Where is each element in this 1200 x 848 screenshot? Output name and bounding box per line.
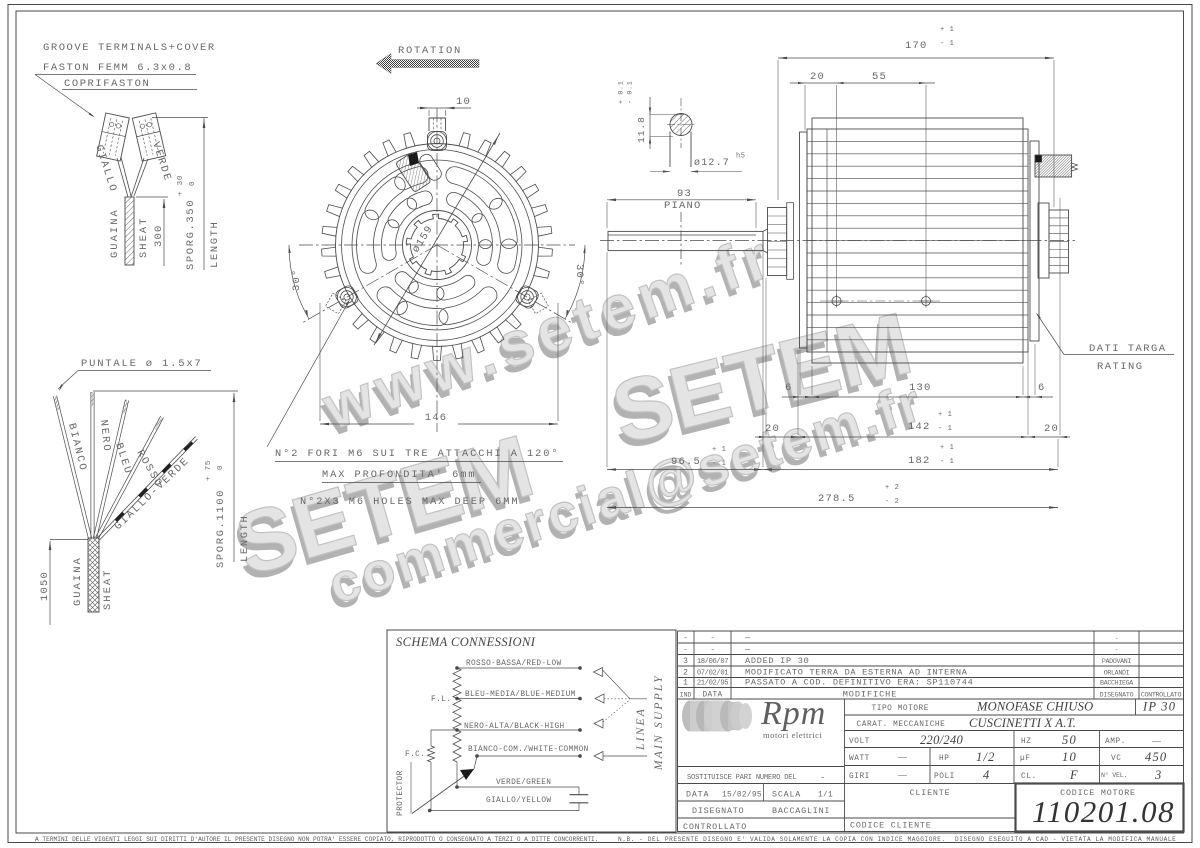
svg-text:+ 1: + 1 bbox=[940, 26, 954, 34]
svg-text:DISEGNO ESEGUITO A CAD - VIETA: DISEGNO ESEGUITO A CAD - VIETATA LA MODI… bbox=[955, 836, 1176, 843]
svg-text:N° VEL.: N° VEL. bbox=[1101, 771, 1127, 779]
svg-text:CLIENTE: CLIENTE bbox=[910, 788, 951, 798]
svg-text:20: 20 bbox=[810, 71, 825, 83]
svg-text:SHEAT: SHEAT bbox=[138, 216, 150, 258]
svg-text:55: 55 bbox=[872, 71, 887, 83]
svg-text:h5: h5 bbox=[736, 153, 745, 161]
svg-text:VERDE/GREEN: VERDE/GREEN bbox=[496, 779, 551, 787]
svg-text:20: 20 bbox=[765, 423, 780, 435]
svg-text:VC: VC bbox=[1111, 755, 1121, 763]
svg-text:- 2: - 2 bbox=[885, 498, 899, 506]
svg-text:1/2: 1/2 bbox=[976, 750, 996, 764]
svg-text:1050: 1050 bbox=[39, 571, 51, 601]
svg-text:DATA: DATA bbox=[686, 790, 709, 800]
svg-text:LINEA: LINEA bbox=[635, 707, 647, 751]
svg-text:VOLT: VOLT bbox=[849, 738, 870, 746]
svg-text:1: 1 bbox=[683, 679, 688, 688]
svg-text:MONOFASE CHIUSO: MONOFASE CHIUSO bbox=[976, 700, 1093, 714]
svg-text:110201.08: 110201.08 bbox=[1032, 794, 1175, 829]
svg-text:+ 1: + 1 bbox=[938, 411, 952, 419]
svg-text:CARAT. MECCANICHE: CARAT. MECCANICHE bbox=[857, 721, 946, 729]
svg-text:PASSATO A COD. DEFINITIVO ERA:: PASSATO A COD. DEFINITIVO ERA: SP110744 bbox=[745, 678, 973, 688]
svg-text:CUSCINETTI X A.T.: CUSCINETTI X A.T. bbox=[969, 716, 1076, 730]
svg-text:CONTROLLATO: CONTROLLATO bbox=[1141, 692, 1182, 699]
svg-text:RATING: RATING bbox=[1097, 361, 1144, 373]
svg-text:DISEGNATO: DISEGNATO bbox=[1100, 692, 1134, 699]
svg-text:HZ: HZ bbox=[1021, 738, 1031, 746]
svg-text:- 1: - 1 bbox=[938, 425, 952, 433]
svg-text:300: 300 bbox=[153, 224, 165, 247]
svg-text:F: F bbox=[1069, 768, 1079, 782]
svg-text:GUAINA: GUAINA bbox=[109, 208, 121, 258]
svg-text:µF: µF bbox=[1020, 755, 1030, 763]
svg-text:BACCHIEGA: BACCHIEGA bbox=[1100, 680, 1133, 687]
svg-text:10: 10 bbox=[456, 96, 471, 108]
svg-text:130: 130 bbox=[909, 382, 932, 394]
svg-text:GIRI: GIRI bbox=[849, 773, 870, 781]
svg-text:BLEU-MEDIA/BLUE-MEDIUM: BLEU-MEDIA/BLUE-MEDIUM bbox=[465, 691, 576, 699]
svg-text:50: 50 bbox=[1062, 733, 1077, 747]
svg-text:Rpm: Rpm bbox=[760, 695, 826, 732]
svg-text:CONTROLLATO: CONTROLLATO bbox=[683, 822, 747, 832]
svg-text:2: 2 bbox=[683, 669, 688, 678]
svg-text:LENGTH: LENGTH bbox=[209, 221, 221, 268]
svg-text:DATA: DATA bbox=[703, 692, 723, 700]
svg-text:170: 170 bbox=[905, 40, 928, 52]
svg-text:MAX PROFONDITA' 6mm: MAX PROFONDITA' 6mm bbox=[322, 469, 476, 481]
svg-text:6: 6 bbox=[785, 382, 793, 394]
svg-text:IND: IND bbox=[680, 692, 692, 700]
svg-text:15/02/95: 15/02/95 bbox=[722, 792, 762, 800]
svg-text:450: 450 bbox=[1145, 750, 1167, 764]
svg-text:07/02/01: 07/02/01 bbox=[697, 670, 728, 678]
svg-text:COPRIFASTON: COPRIFASTON bbox=[64, 78, 150, 90]
svg-text:30°: 30° bbox=[573, 264, 585, 287]
svg-text:278.5: 278.5 bbox=[818, 493, 856, 505]
svg-text:HP: HP bbox=[939, 755, 949, 763]
svg-text:—: — bbox=[744, 645, 751, 655]
svg-text:+ 1: + 1 bbox=[712, 446, 726, 454]
svg-text:- 1: - 1 bbox=[712, 460, 726, 468]
svg-text:ROTATION: ROTATION bbox=[398, 45, 462, 57]
svg-text:30°: 30° bbox=[291, 268, 303, 291]
svg-text:IP 30: IP 30 bbox=[1142, 700, 1176, 714]
svg-text:F.C.: F.C. bbox=[405, 751, 425, 759]
svg-text:3: 3 bbox=[683, 657, 688, 666]
svg-text:142: 142 bbox=[908, 421, 931, 433]
svg-text:SCHEMA CONNESSIONI: SCHEMA CONNESSIONI bbox=[396, 635, 536, 649]
svg-text:—: — bbox=[897, 752, 907, 763]
svg-text:+ 1: + 1 bbox=[940, 444, 954, 452]
svg-text:N°2 FORI M6 SUI TRE ATTACCHI A: N°2 FORI M6 SUI TRE ATTACCHI A 120° bbox=[275, 448, 560, 460]
svg-text:-: - bbox=[1115, 635, 1119, 642]
svg-text:- 1: - 1 bbox=[940, 40, 954, 48]
svg-text:4: 4 bbox=[983, 768, 990, 782]
svg-text:-: - bbox=[683, 646, 688, 655]
svg-text:F.L.: F.L. bbox=[431, 696, 451, 704]
svg-text:DATI TARGA: DATI TARGA bbox=[1089, 343, 1167, 355]
svg-text:PADOVANI: PADOVANI bbox=[1102, 658, 1132, 665]
svg-text:PROTECTOR: PROTECTOR bbox=[397, 770, 405, 816]
svg-text:ø12.7: ø12.7 bbox=[694, 158, 730, 169]
svg-text:-: - bbox=[683, 634, 688, 643]
svg-text:BACCAGLINI: BACCAGLINI bbox=[772, 806, 830, 816]
svg-text:SPORG.1100: SPORG.1100 bbox=[215, 489, 227, 568]
svg-text:MODIFICATO TERRA DA ESTERNA AD: MODIFICATO TERRA DA ESTERNA AD INTERNA bbox=[745, 668, 968, 678]
svg-text:WATT: WATT bbox=[849, 755, 870, 763]
svg-text:-: - bbox=[820, 773, 825, 783]
svg-text:21/02/95: 21/02/95 bbox=[697, 680, 728, 688]
svg-text:0: 0 bbox=[217, 465, 225, 470]
svg-text:20: 20 bbox=[1044, 423, 1059, 435]
svg-text:146: 146 bbox=[425, 412, 448, 424]
svg-text:N°2X3 M6 HOLES MAX DEEP 6MM: N°2X3 M6 HOLES MAX DEEP 6MM bbox=[300, 496, 520, 508]
svg-text:MAIN SUPPLY: MAIN SUPPLY bbox=[653, 674, 665, 771]
svg-text:N.B. - DEL PRESENTE DISEGNO E': N.B. - DEL PRESENTE DISEGNO E' VALIDA SO… bbox=[618, 836, 946, 843]
svg-text:DISEGNATO: DISEGNATO bbox=[692, 806, 744, 816]
svg-text:GROOVE TERMINALS+COVER: GROOVE TERMINALS+COVER bbox=[43, 42, 216, 54]
svg-text:GIALLO/YELLOW: GIALLO/YELLOW bbox=[486, 797, 551, 805]
svg-text:220/240: 220/240 bbox=[920, 733, 964, 747]
svg-text:MODIFICHE: MODIFICHE bbox=[843, 690, 898, 700]
svg-text:0: 0 bbox=[189, 181, 197, 186]
svg-text:-: - bbox=[711, 647, 715, 655]
svg-text:+ 30: + 30 bbox=[177, 175, 185, 196]
svg-text:ADDED IP 30: ADDED IP 30 bbox=[745, 656, 809, 666]
svg-text:POLI: POLI bbox=[934, 773, 955, 781]
svg-text:+ 0.1: + 0.1 bbox=[618, 81, 626, 104]
svg-text:+ 2: + 2 bbox=[885, 484, 899, 492]
svg-text:-: - bbox=[711, 635, 715, 643]
svg-text:—: — bbox=[1151, 736, 1161, 747]
svg-text:A TERMINI DELLE VIGENTI LEGGI: A TERMINI DELLE VIGENTI LEGGI SUI DIRITT… bbox=[35, 836, 598, 843]
svg-text:PUNTALE ø 1.5x7: PUNTALE ø 1.5x7 bbox=[81, 358, 203, 370]
svg-text:CODICE CLIENTE: CODICE CLIENTE bbox=[850, 821, 932, 831]
svg-text:SCALA: SCALA bbox=[772, 790, 801, 800]
svg-text:3: 3 bbox=[1154, 768, 1162, 782]
svg-text:—: — bbox=[897, 770, 907, 781]
svg-text:182: 182 bbox=[908, 455, 931, 467]
svg-text:ROSSO-BASSA/RED-LOW: ROSSO-BASSA/RED-LOW bbox=[466, 660, 562, 668]
svg-text:TIPO MOTORE: TIPO MOTORE bbox=[872, 705, 930, 713]
svg-text:10: 10 bbox=[1062, 750, 1077, 764]
svg-text:AMP.: AMP. bbox=[1105, 738, 1126, 746]
svg-text:+ 75: + 75 bbox=[205, 460, 213, 481]
svg-text:SHEAT: SHEAT bbox=[102, 568, 114, 610]
svg-text:PIANO: PIANO bbox=[664, 200, 702, 212]
svg-text:- 0.1: - 0.1 bbox=[627, 81, 635, 104]
svg-text:—: — bbox=[744, 633, 751, 643]
svg-text:-: - bbox=[1115, 647, 1119, 654]
svg-text:- 1: - 1 bbox=[940, 458, 954, 466]
svg-text:LENGTH: LENGTH bbox=[239, 515, 251, 562]
svg-text:93: 93 bbox=[677, 188, 692, 200]
svg-text:BIANCO-COM./WHITE-COMMON: BIANCO-COM./WHITE-COMMON bbox=[468, 746, 589, 754]
svg-text:18/06/07: 18/06/07 bbox=[697, 658, 728, 666]
svg-text:SOSTITUISCE PARI NUMERO DEL: SOSTITUISCE PARI NUMERO DEL bbox=[687, 774, 796, 782]
svg-text:11.8: 11.8 bbox=[636, 116, 647, 143]
svg-text:ORLANDI: ORLANDI bbox=[1104, 670, 1130, 677]
svg-text:GUAINA: GUAINA bbox=[72, 556, 84, 606]
svg-text:1/1: 1/1 bbox=[818, 792, 833, 800]
svg-text:FASTON FEMM 6.3x0.8: FASTON FEMM 6.3x0.8 bbox=[43, 62, 192, 74]
svg-text:motori elettrici: motori elettrici bbox=[763, 730, 822, 740]
svg-text:96.5: 96.5 bbox=[671, 456, 701, 468]
svg-text:SPORG.350: SPORG.350 bbox=[185, 199, 197, 270]
svg-text:CL.: CL. bbox=[1021, 773, 1037, 781]
svg-text:6: 6 bbox=[1038, 382, 1046, 394]
